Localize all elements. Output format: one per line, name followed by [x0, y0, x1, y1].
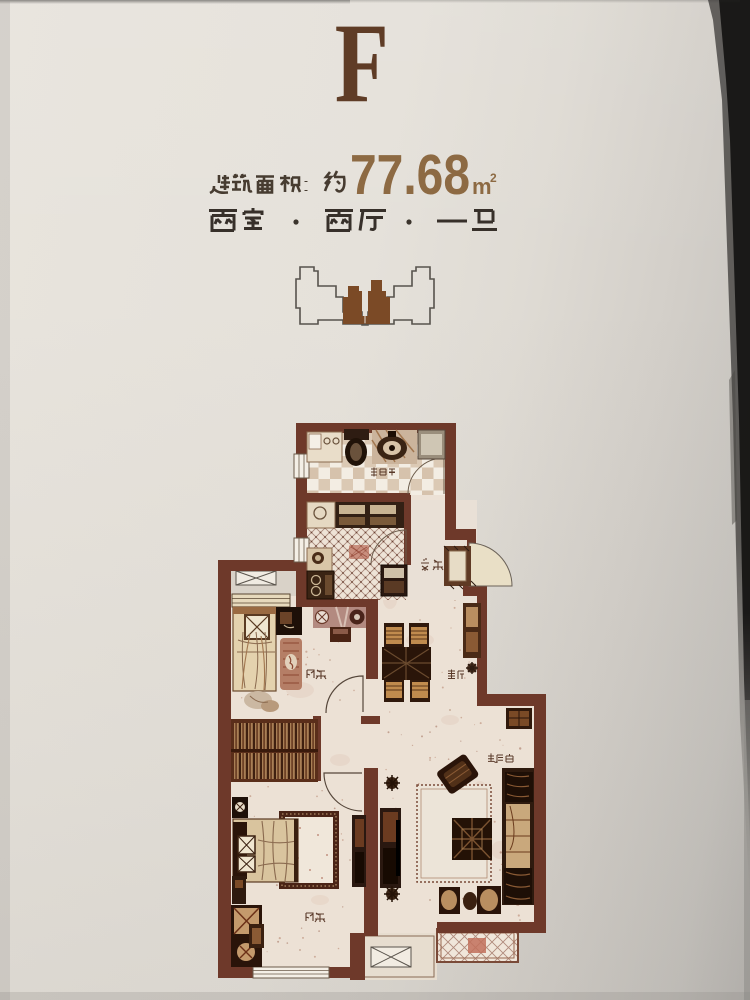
svg-text:m: m [472, 174, 492, 199]
svg-text:2: 2 [490, 171, 497, 185]
svg-text:F: F [335, 1, 389, 126]
svg-text:77.68: 77.68 [350, 143, 470, 207]
